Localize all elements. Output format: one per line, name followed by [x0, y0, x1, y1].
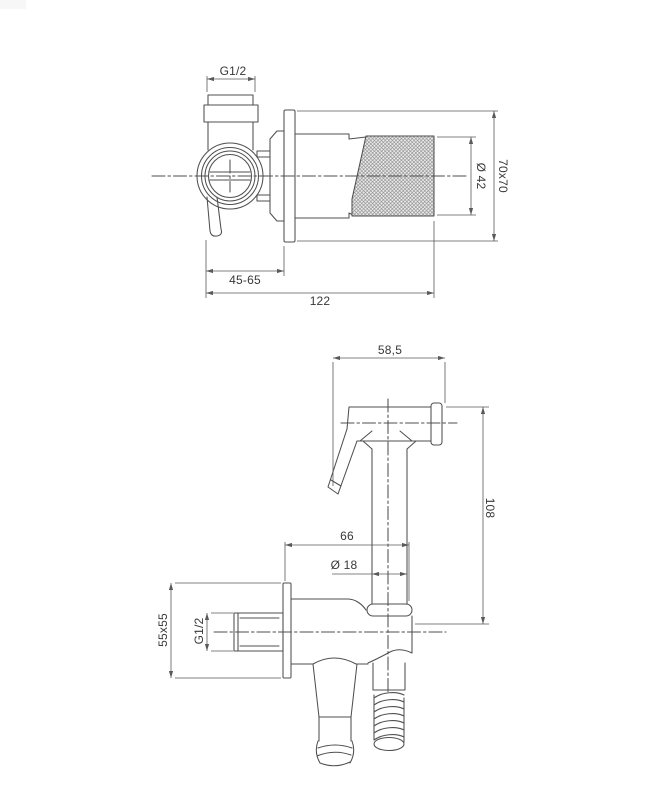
dim-stem-diameter-label: Ø 18	[331, 558, 358, 572]
dim-total-length-label: 122	[310, 294, 331, 308]
dim-wall-plate-55: 55x55	[156, 583, 281, 678]
drawing-canvas: G1/2 Ø 42 70x70 45-65 122	[0, 0, 668, 800]
flex-hose	[316, 741, 353, 766]
bottom-view	[214, 399, 457, 766]
dim-outlet-thread-label: G1/2	[192, 617, 206, 644]
dim-inlet-thread: G1/2	[207, 64, 255, 92]
top-view	[152, 95, 468, 242]
dim-wall-plate-55-label: 55x55	[156, 613, 170, 647]
dim-inlet-thread-label: G1/2	[220, 64, 247, 78]
spiral-hose-coils	[374, 693, 404, 740]
handle-stem	[372, 449, 407, 604]
dim-height: 108	[415, 407, 497, 624]
wall-plate-bottom-view	[283, 583, 291, 678]
dim-extension-lines	[415, 407, 489, 624]
dim-handle-diameter-label: Ø 42	[474, 163, 488, 190]
dim-extension-lines	[333, 362, 445, 486]
outlet-cone	[313, 664, 357, 717]
valve-body-bottom	[291, 658, 368, 664]
dim-head-length-label: 58,5	[378, 343, 402, 357]
holder-bottom-curve	[368, 650, 412, 663]
dim-head-length: 58,5	[333, 343, 445, 486]
holder-collar	[367, 604, 412, 616]
bottom-view-dimensions: 58,5 108 66 Ø 18 55x55	[156, 343, 497, 678]
outlet-cylinder	[319, 717, 351, 741]
dim-extension-lines	[175, 583, 281, 678]
dim-extension-lines	[206, 240, 284, 298]
dim-installation-depth: 45-65	[206, 240, 284, 298]
technical-drawing-sheet: G1/2 Ø 42 70x70 45-65 122	[0, 0, 668, 800]
spray-head-body	[347, 407, 431, 441]
dim-stem-diameter: Ø 18	[331, 558, 407, 574]
spiral-hose-end	[374, 738, 404, 751]
handle-shoulder-chamfers	[363, 441, 416, 449]
hose-nut	[373, 663, 405, 690]
inlet-pipe-lower	[208, 122, 253, 150]
dim-wall-plate-70-label: 70x70	[496, 159, 510, 193]
watermark-remnant	[0, 0, 26, 9]
dim-height-label: 108	[483, 498, 497, 519]
spray-nozzle	[328, 429, 357, 494]
dim-extension-lines	[207, 76, 255, 92]
spray-head-cap	[431, 403, 442, 445]
dim-reach-label: 66	[340, 529, 354, 543]
dim-total-length: 122	[206, 221, 434, 308]
inlet-pipe-top	[208, 95, 253, 105]
valve-body-top	[291, 599, 366, 610]
dim-installation-depth-label: 45-65	[229, 273, 261, 287]
spray-head-inner-cone	[360, 431, 412, 441]
inlet-pipe-collar	[204, 105, 258, 122]
